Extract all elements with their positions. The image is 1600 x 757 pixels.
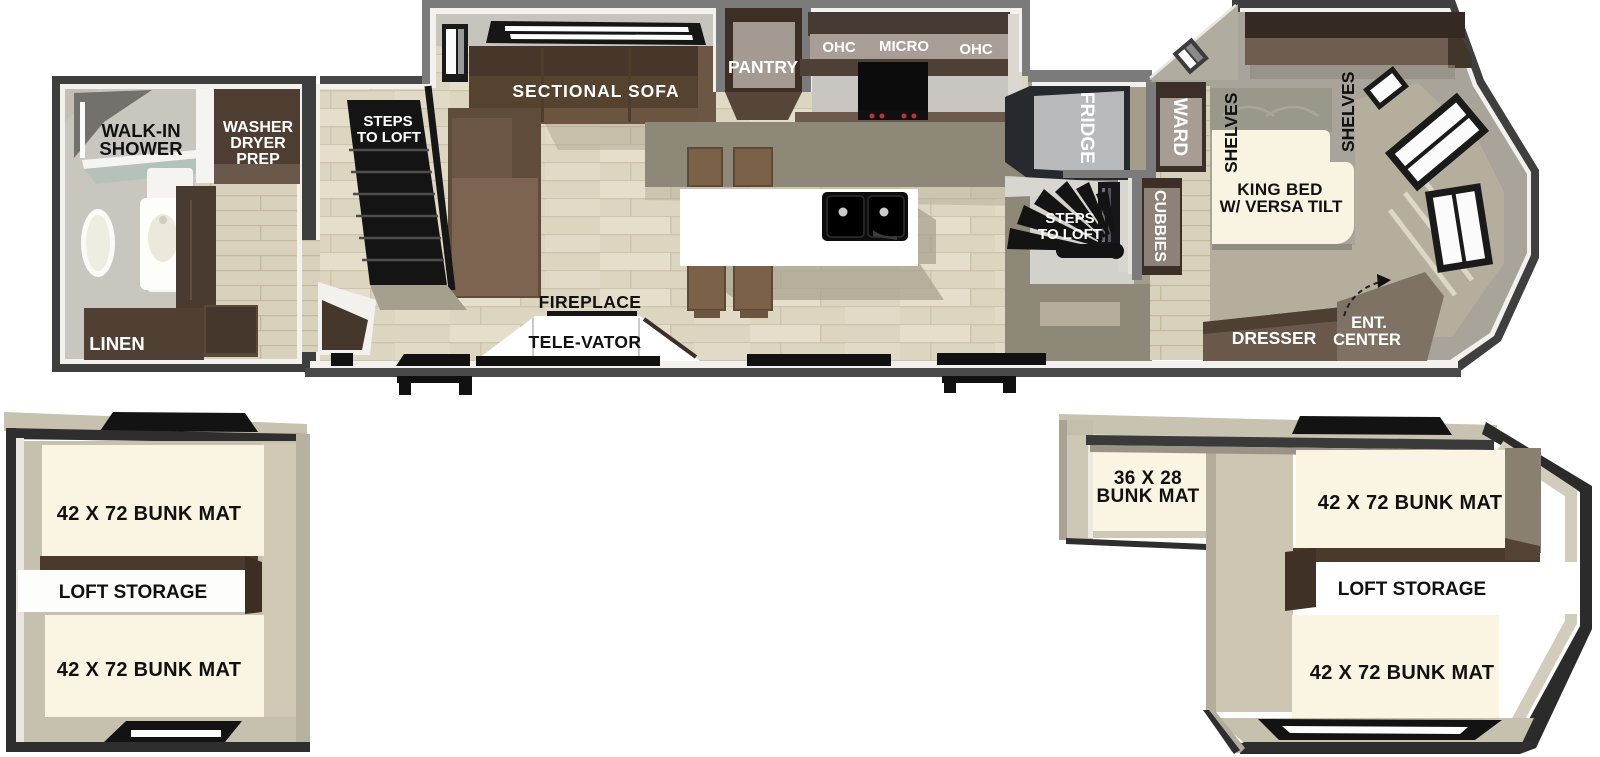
svg-text:LINEN: LINEN bbox=[89, 333, 145, 354]
svg-text:42 X 72 BUNK MAT: 42 X 72 BUNK MAT bbox=[1310, 662, 1494, 684]
svg-text:OHC: OHC bbox=[822, 39, 856, 56]
svg-text:CENTER: CENTER bbox=[1333, 331, 1401, 349]
svg-text:STEPS: STEPS bbox=[363, 113, 412, 130]
svg-text:TO LOFT: TO LOFT bbox=[357, 129, 421, 146]
svg-text:PREP: PREP bbox=[236, 151, 280, 168]
svg-text:SECTIONAL SOFA: SECTIONAL SOFA bbox=[512, 81, 679, 101]
svg-text:TELE-VATOR: TELE-VATOR bbox=[529, 332, 642, 352]
svg-text:PANTRY: PANTRY bbox=[728, 57, 798, 77]
svg-text:WARD: WARD bbox=[1169, 98, 1190, 156]
svg-text:DRYER: DRYER bbox=[230, 135, 286, 152]
svg-text:OHC: OHC bbox=[959, 41, 993, 58]
svg-text:ENT.: ENT. bbox=[1351, 314, 1387, 332]
svg-text:FIREPLACE: FIREPLACE bbox=[539, 292, 642, 312]
svg-text:TO LOFT: TO LOFT bbox=[1038, 226, 1102, 243]
svg-text:BUNK MAT: BUNK MAT bbox=[1096, 486, 1199, 507]
svg-text:SHELVES: SHELVES bbox=[1221, 93, 1241, 173]
svg-text:LOFT STORAGE: LOFT STORAGE bbox=[59, 582, 207, 603]
svg-text:MICRO: MICRO bbox=[879, 38, 929, 55]
svg-text:42 X 72 BUNK MAT: 42 X 72 BUNK MAT bbox=[1318, 492, 1502, 514]
svg-text:LOFT STORAGE: LOFT STORAGE bbox=[1338, 579, 1486, 600]
svg-text:FRIDGE: FRIDGE bbox=[1076, 92, 1097, 164]
svg-text:DRESSER: DRESSER bbox=[1232, 328, 1317, 348]
svg-text:W/ VERSA TILT: W/ VERSA TILT bbox=[1220, 197, 1343, 216]
svg-text:SHELVES: SHELVES bbox=[1338, 72, 1358, 152]
svg-text:42 X 72 BUNK MAT: 42 X 72 BUNK MAT bbox=[57, 503, 241, 525]
svg-text:WASHER: WASHER bbox=[223, 119, 294, 136]
svg-text:CUBBIES: CUBBIES bbox=[1151, 190, 1168, 262]
svg-text:SHOWER: SHOWER bbox=[99, 138, 182, 159]
svg-text:STEPS: STEPS bbox=[1045, 210, 1094, 227]
svg-text:42 X 72 BUNK MAT: 42 X 72 BUNK MAT bbox=[57, 659, 241, 681]
